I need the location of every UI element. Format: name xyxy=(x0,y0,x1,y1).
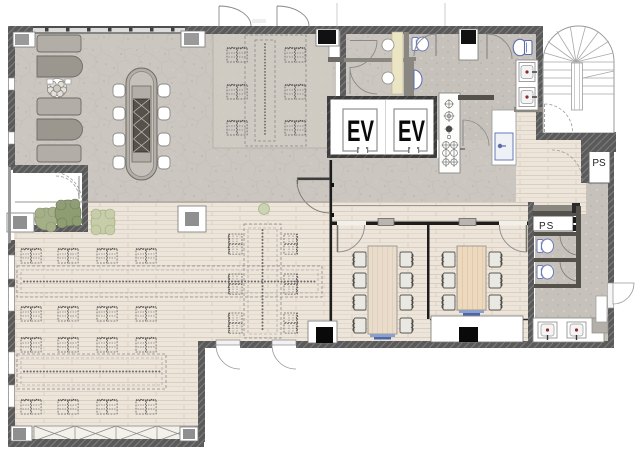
svg-text:PS: PS xyxy=(592,158,606,169)
svg-text:EV: EV xyxy=(398,115,425,148)
svg-text:PS: PS xyxy=(539,221,554,232)
svg-text:EV: EV xyxy=(347,115,374,148)
